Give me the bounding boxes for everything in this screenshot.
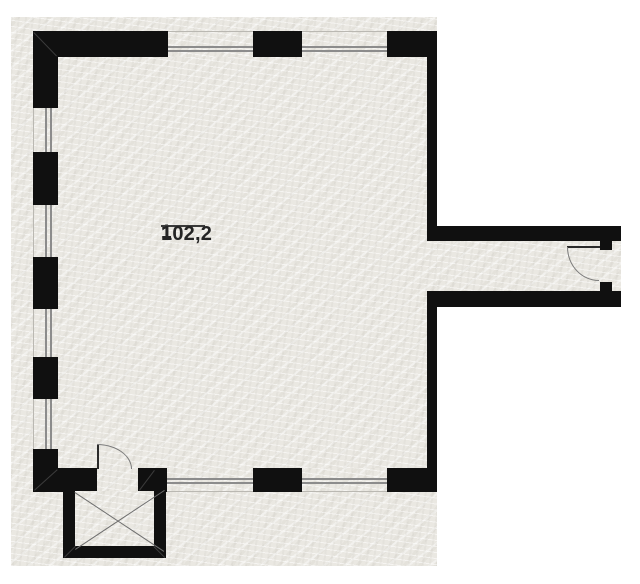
window-bottom-2: [302, 468, 387, 492]
wall-left-pier-4: [33, 357, 58, 399]
window-glass-line: [50, 399, 52, 449]
wall-top-pier-2: [253, 31, 302, 57]
window-glass-line: [50, 309, 52, 357]
window-glass-line: [45, 399, 47, 449]
window-glass-line: [50, 205, 52, 257]
window-top-1: [168, 31, 253, 57]
wall-left-pier-3: [33, 257, 58, 309]
corridor-wall-bottom: [428, 291, 621, 307]
window-glass-line: [302, 50, 387, 52]
window-top-2: [302, 31, 387, 57]
window-glass-line: [45, 205, 47, 257]
window-glass-line: [302, 482, 387, 484]
wall-bottom-pier-3: [253, 468, 302, 492]
wall-bottom-pier-4: [387, 468, 437, 492]
window-left-4: [33, 399, 58, 449]
wall-left-pier-2: [33, 152, 58, 205]
wall-right-upper: [427, 31, 437, 241]
window-glass-line: [302, 478, 387, 480]
window-glass-line: [168, 50, 253, 52]
window-glass-line: [50, 108, 52, 152]
window-left-2: [33, 205, 58, 257]
window-glass-line: [167, 482, 253, 484]
window-glass-line: [45, 309, 47, 357]
window-glass-line: [45, 108, 47, 152]
window-glass-line: [168, 46, 253, 48]
wall-bottom-pier-1: [33, 468, 97, 492]
room-area-text: 102,2: [161, 223, 212, 245]
window-bottom-1: [167, 468, 253, 492]
corridor-wall-top: [428, 226, 621, 241]
window-left-3: [33, 309, 58, 357]
window-glass-line: [167, 478, 253, 480]
entry-door-jamb-top: [600, 241, 612, 250]
entry-door-jamb-bottom: [600, 282, 612, 291]
window-glass-line: [302, 46, 387, 48]
wall-left-pier-1: [33, 31, 58, 108]
wall-right-lower: [427, 291, 437, 492]
floor-plan: 1 102,2: [0, 0, 640, 584]
window-left-1: [33, 108, 58, 152]
